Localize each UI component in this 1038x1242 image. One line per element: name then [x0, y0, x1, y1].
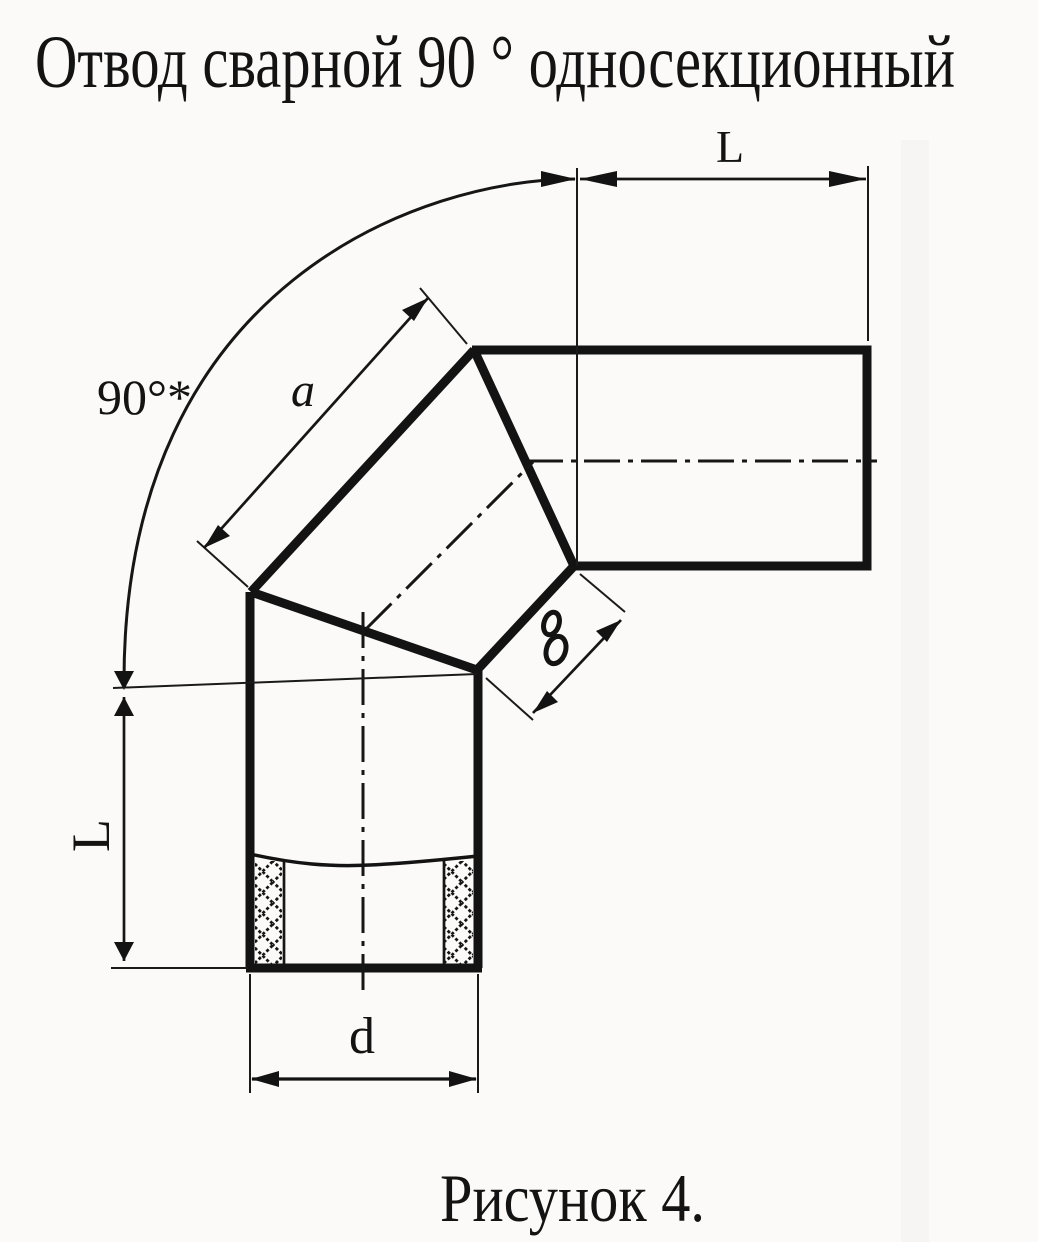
svg-text:L: L — [61, 819, 121, 852]
svg-text:Рисунок 4.: Рисунок 4. — [440, 1160, 705, 1236]
svg-text:a: a — [291, 364, 315, 417]
svg-text:L: L — [716, 121, 744, 172]
svg-text:d: d — [349, 1008, 375, 1065]
svg-text:Отвод сварной 90 ° односекцион: Отвод сварной 90 ° односекционный — [35, 21, 955, 104]
svg-text:90°*: 90°* — [97, 369, 192, 425]
